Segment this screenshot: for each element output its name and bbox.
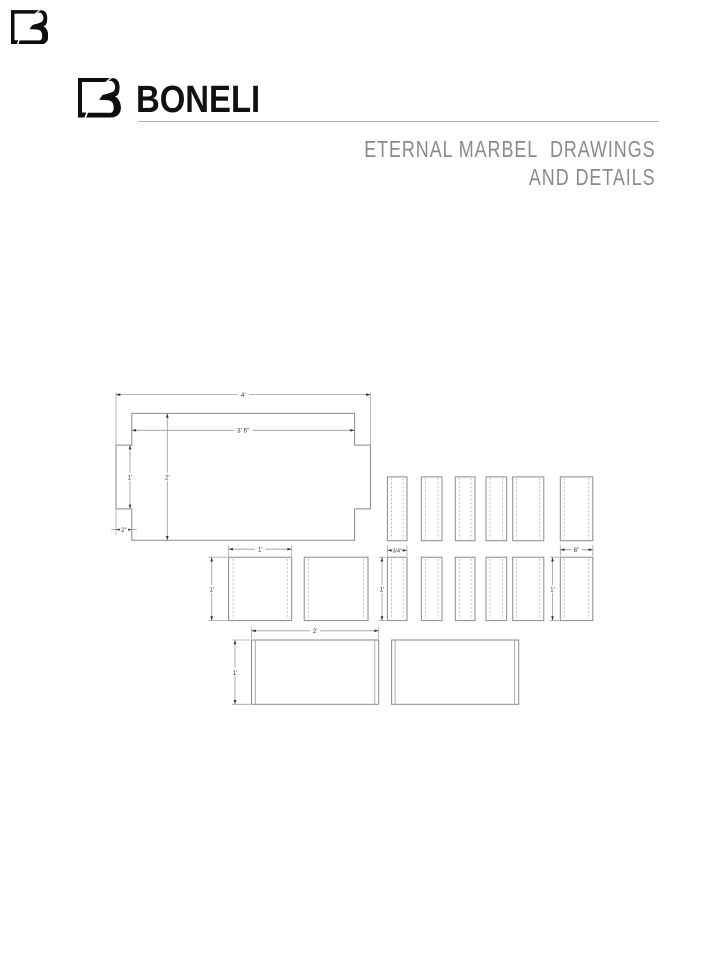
svg-text:1': 1'	[209, 587, 214, 594]
svg-text:2': 2'	[313, 628, 318, 635]
svg-text:4': 4'	[241, 392, 246, 399]
svg-text:3' 6": 3' 6"	[237, 428, 249, 435]
svg-text:2': 2'	[165, 474, 170, 481]
svg-text:1': 1'	[550, 587, 555, 594]
svg-text:1': 1'	[233, 670, 238, 677]
svg-text:1': 1'	[128, 475, 133, 482]
svg-text:1': 1'	[258, 547, 263, 554]
svg-text:3/4": 3/4"	[392, 549, 402, 555]
svg-text:1': 1'	[380, 587, 385, 594]
svg-text:6": 6"	[574, 547, 580, 554]
svg-text:2": 2"	[121, 527, 127, 534]
